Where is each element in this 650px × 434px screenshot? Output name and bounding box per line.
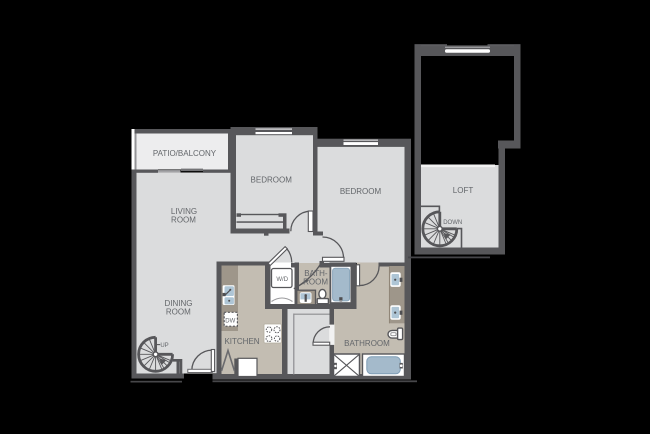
svg-text:LOFT: LOFT: [453, 186, 474, 195]
svg-text:ROOM: ROOM: [171, 215, 196, 224]
svg-text:DOWN: DOWN: [443, 220, 462, 226]
svg-text:BATHROOM: BATHROOM: [344, 339, 390, 348]
svg-text:ROOM: ROOM: [166, 308, 191, 317]
svg-text:KITCHEN: KITCHEN: [224, 337, 259, 346]
svg-text:W/D: W/D: [276, 277, 288, 283]
svg-text:DINING: DINING: [165, 299, 193, 308]
svg-text:UP: UP: [160, 343, 168, 349]
svg-text:DW: DW: [225, 318, 235, 324]
svg-text:PATIO/BALCONY: PATIO/BALCONY: [153, 149, 217, 158]
svg-text:ROOM: ROOM: [303, 278, 328, 287]
svg-text:BEDROOM: BEDROOM: [340, 187, 382, 196]
svg-text:BEDROOM: BEDROOM: [251, 175, 293, 184]
